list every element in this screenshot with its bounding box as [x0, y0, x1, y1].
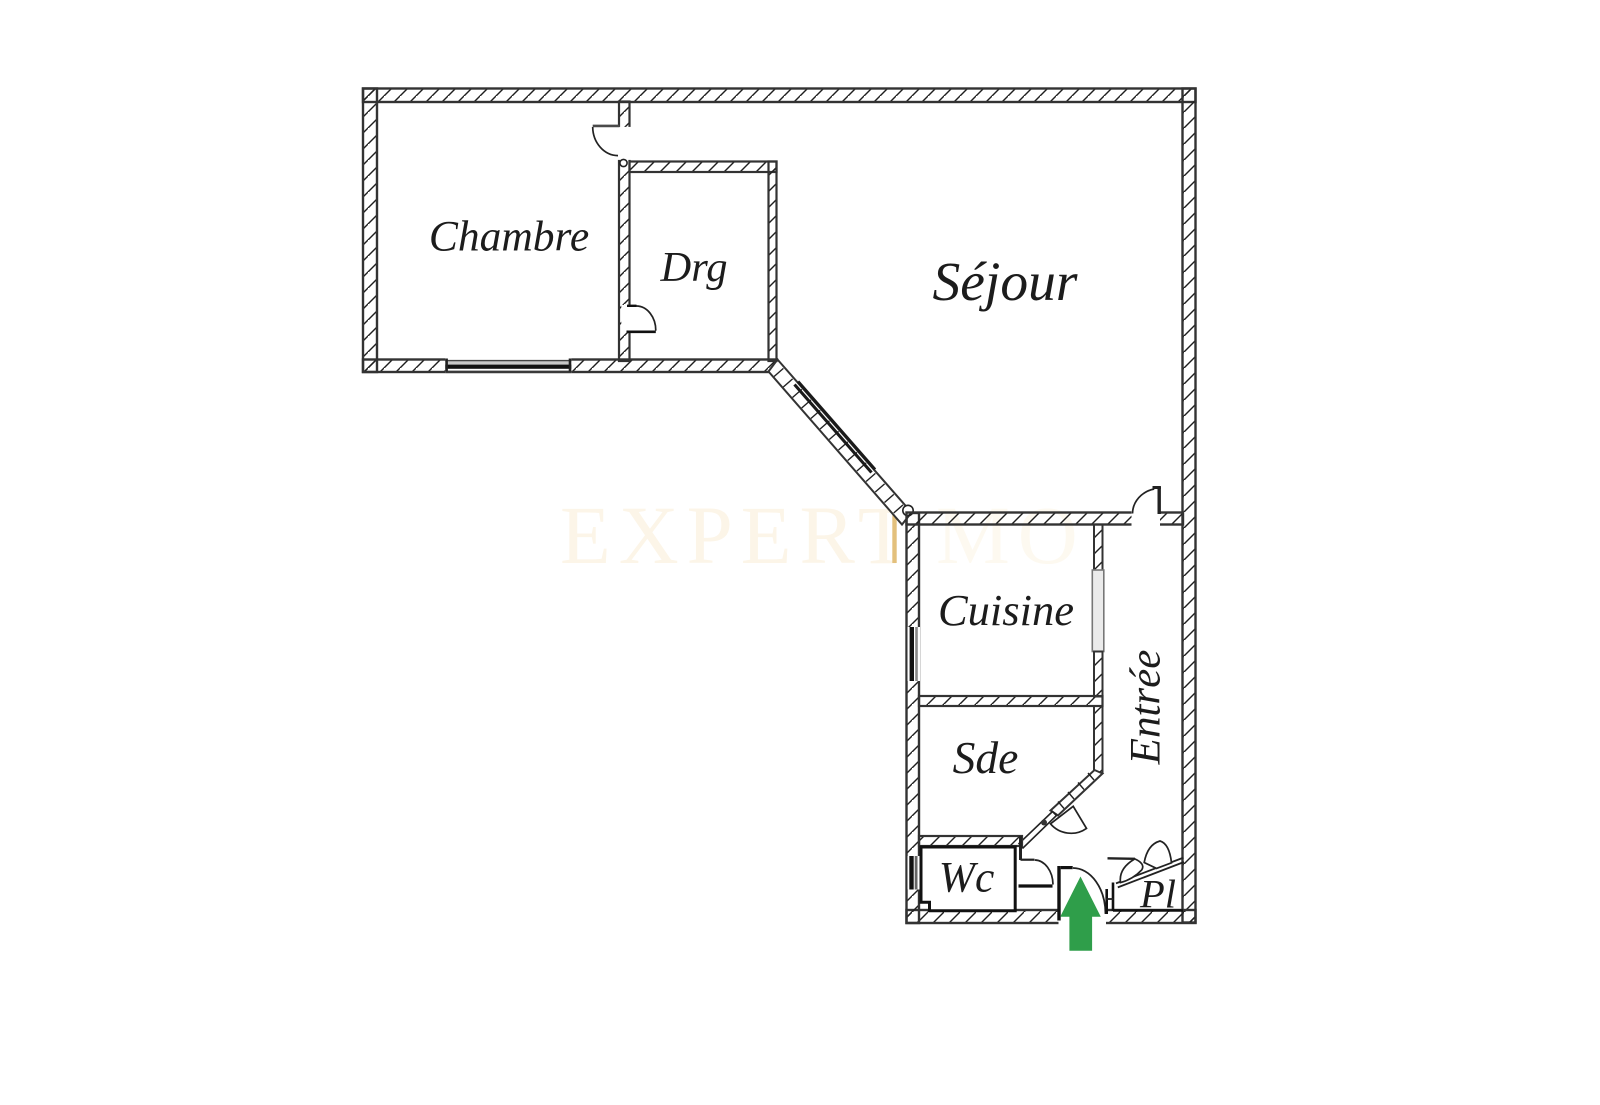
svg-text:Entrée: Entrée: [1123, 650, 1170, 766]
svg-text:Wc: Wc: [939, 854, 995, 902]
svg-text:MO: MO: [936, 489, 1086, 581]
svg-text:EXPERT: EXPERT: [560, 489, 917, 581]
svg-text:Pl: Pl: [1139, 872, 1176, 917]
svg-text:Drg: Drg: [660, 244, 728, 291]
svg-text:Séjour: Séjour: [933, 252, 1078, 313]
svg-text:Cuisine: Cuisine: [938, 585, 1074, 635]
svg-text:Sde: Sde: [953, 732, 1019, 783]
svg-text:Chambre: Chambre: [429, 213, 589, 261]
